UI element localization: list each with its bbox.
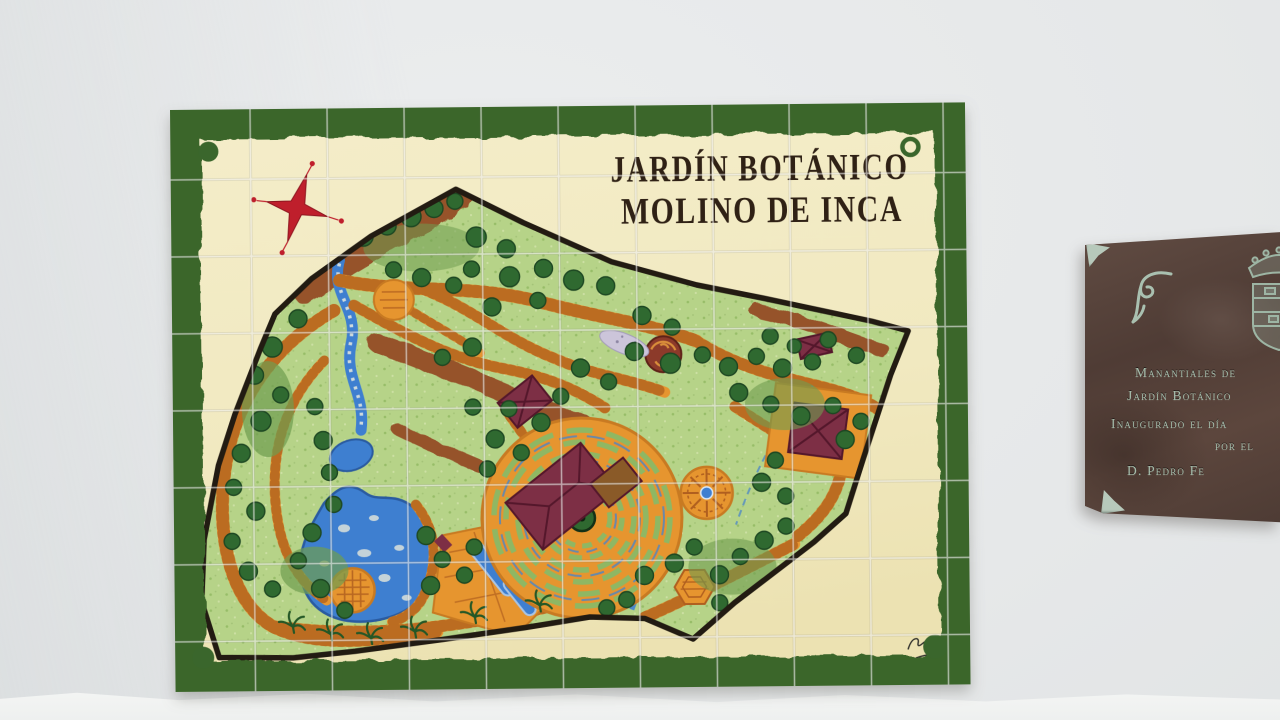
tile-mural: JARDÍN BOTÁNICO MOLINO DE INCA [170,102,971,692]
plaque-line: Jardín Botánico [1127,389,1232,403]
plaque-line: por el [1215,439,1254,453]
mural-art: JARDÍN BOTÁNICO MOLINO DE INCA [170,102,971,692]
wall-repaint-strip [0,688,1280,720]
plaque-line: Inaugurado el día [1111,417,1228,431]
plaque-corner-mount-icon [1101,490,1125,514]
round-plaza [680,467,732,519]
upper-circle-plaza [374,280,414,320]
plaque-flourish-icon [1125,268,1179,326]
plaque-body: Manantiales de Jardín Botánico Inaugurad… [1085,230,1280,530]
plaque-line: D. Pedro Fe [1127,464,1205,478]
plaque-line: Manantiales de [1135,366,1236,380]
mural-title-line1: JARDÍN BOTÁNICO [610,146,908,191]
plaque-crest-icon [1243,240,1280,365]
mural-title-line2: MOLINO DE INCA [621,189,903,233]
plaque-corner-mount-icon [1086,243,1110,267]
dedication-plaque: Manantiales de Jardín Botánico Inaugurad… [1085,230,1280,530]
photo-of-wall: { "scene": { "wall_color": "#e6e8e9", "w… [0,0,1280,720]
mural-title: JARDÍN BOTÁNICO MOLINO DE INCA [610,146,909,233]
